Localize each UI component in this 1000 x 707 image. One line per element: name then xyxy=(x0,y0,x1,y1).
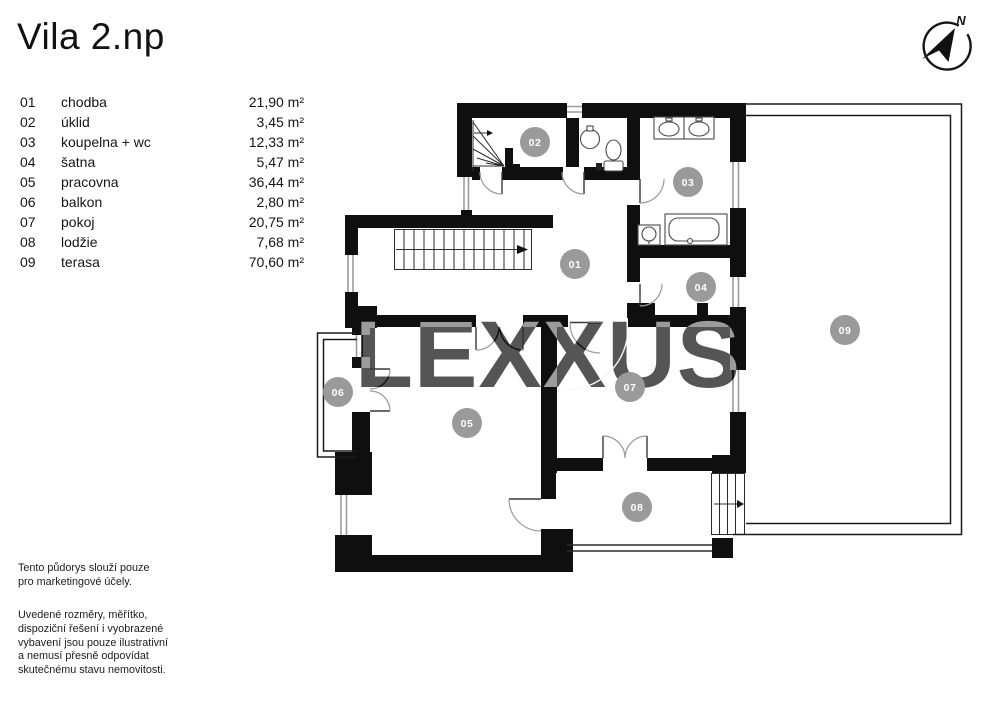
room-badge-09: 09 xyxy=(830,315,860,345)
legend-row: 03 koupelna + wc 12,33 m² xyxy=(20,134,304,154)
room-area: 21,90 m² xyxy=(232,94,304,110)
fixtures xyxy=(581,117,728,245)
room-area: 5,47 m² xyxy=(232,154,304,170)
room-badge-07: 07 xyxy=(615,372,645,402)
room-area: 3,45 m² xyxy=(232,114,304,130)
svg-text:04: 04 xyxy=(695,282,708,294)
window xyxy=(341,495,347,535)
svg-text:01: 01 xyxy=(569,259,582,271)
main-staircase xyxy=(395,230,532,270)
room-badge-01: 01 xyxy=(560,249,590,279)
double-sink xyxy=(654,117,714,139)
room-number: 03 xyxy=(20,134,61,150)
paper-holder xyxy=(596,163,602,170)
room-number: 07 xyxy=(20,214,61,230)
room-area: 36,44 m² xyxy=(232,174,304,190)
room-number: 08 xyxy=(20,234,61,250)
room-name: úklid xyxy=(61,114,232,130)
room-badge-06: 06 xyxy=(323,377,353,407)
room-name: balkon xyxy=(61,194,232,210)
page-title: Vila 2.np xyxy=(17,16,165,58)
sink xyxy=(638,225,660,245)
door-arc xyxy=(640,179,664,203)
room-legend: 01 chodba 21,90 m² 02 úklid 3,45 m² 03 k… xyxy=(20,94,304,274)
room-badge-05: 05 xyxy=(452,408,482,438)
room-number: 02 xyxy=(20,114,61,130)
room-area: 20,75 m² xyxy=(232,214,304,230)
svg-text:08: 08 xyxy=(631,502,644,514)
room-number: 01 xyxy=(20,94,61,110)
room-area: 7,68 m² xyxy=(232,234,304,250)
room-area: 2,80 m² xyxy=(232,194,304,210)
svg-text:05: 05 xyxy=(461,418,474,430)
loggia-railing xyxy=(567,545,712,551)
compass-north-label: N xyxy=(956,13,966,28)
room-name: lodžie xyxy=(61,234,232,250)
legend-row: 08 lodžie 7,68 m² xyxy=(20,234,304,254)
room-badge-08: 08 xyxy=(622,492,652,522)
room-badge-02: 02 xyxy=(520,127,550,157)
room-name: pracovna xyxy=(61,174,232,190)
room-number: 04 xyxy=(20,154,61,170)
legend-row: 07 pokoj 20,75 m² xyxy=(20,214,304,234)
sink xyxy=(581,126,600,149)
room-badge-04: 04 xyxy=(686,272,716,302)
window xyxy=(348,255,353,292)
legend-row: 09 terasa 70,60 m² xyxy=(20,254,304,274)
double-door-arc xyxy=(603,436,647,458)
room-name: koupelna + wc xyxy=(61,134,232,150)
room-name: šatna xyxy=(61,154,232,170)
window xyxy=(464,177,469,210)
room-area: 70,60 m² xyxy=(232,254,304,270)
window xyxy=(733,162,739,208)
disclaimer-dimensions: Uvedené rozměry, měřítko, dispoziční řeš… xyxy=(18,609,188,678)
legend-row: 04 šatna 5,47 m² xyxy=(20,154,304,174)
room-number: 09 xyxy=(20,254,61,270)
legend-row: 05 pracovna 36,44 m² xyxy=(20,174,304,194)
svg-text:09: 09 xyxy=(839,325,852,337)
legend-row: 02 úklid 3,45 m² xyxy=(20,114,304,134)
svg-text:06: 06 xyxy=(332,387,345,399)
watermark-text: LEXXUS xyxy=(355,302,741,408)
room-name: chodba xyxy=(61,94,232,110)
winder-staircase xyxy=(473,120,504,172)
door-arc xyxy=(509,499,541,531)
door-arc xyxy=(562,172,584,194)
svg-text:02: 02 xyxy=(529,137,542,149)
room-number: 05 xyxy=(20,174,61,190)
room-area: 12,33 m² xyxy=(232,134,304,150)
bathtub xyxy=(665,214,727,245)
disclaimer-marketing: Tento půdorys slouží pouze pro marketing… xyxy=(18,562,188,590)
toilet xyxy=(604,140,623,171)
room-number: 06 xyxy=(20,194,61,210)
door-arc xyxy=(480,172,502,194)
room-name: pokoj xyxy=(61,214,232,230)
compass: N xyxy=(922,13,971,70)
legend-row: 01 chodba 21,90 m² xyxy=(20,94,304,114)
window xyxy=(567,107,582,113)
room-badge-03: 03 xyxy=(673,167,703,197)
terrace-staircase xyxy=(712,474,745,535)
svg-text:03: 03 xyxy=(682,177,695,189)
room-name: terasa xyxy=(61,254,232,270)
svg-text:07: 07 xyxy=(624,382,637,394)
legend-row: 06 balkon 2,80 m² xyxy=(20,194,304,214)
